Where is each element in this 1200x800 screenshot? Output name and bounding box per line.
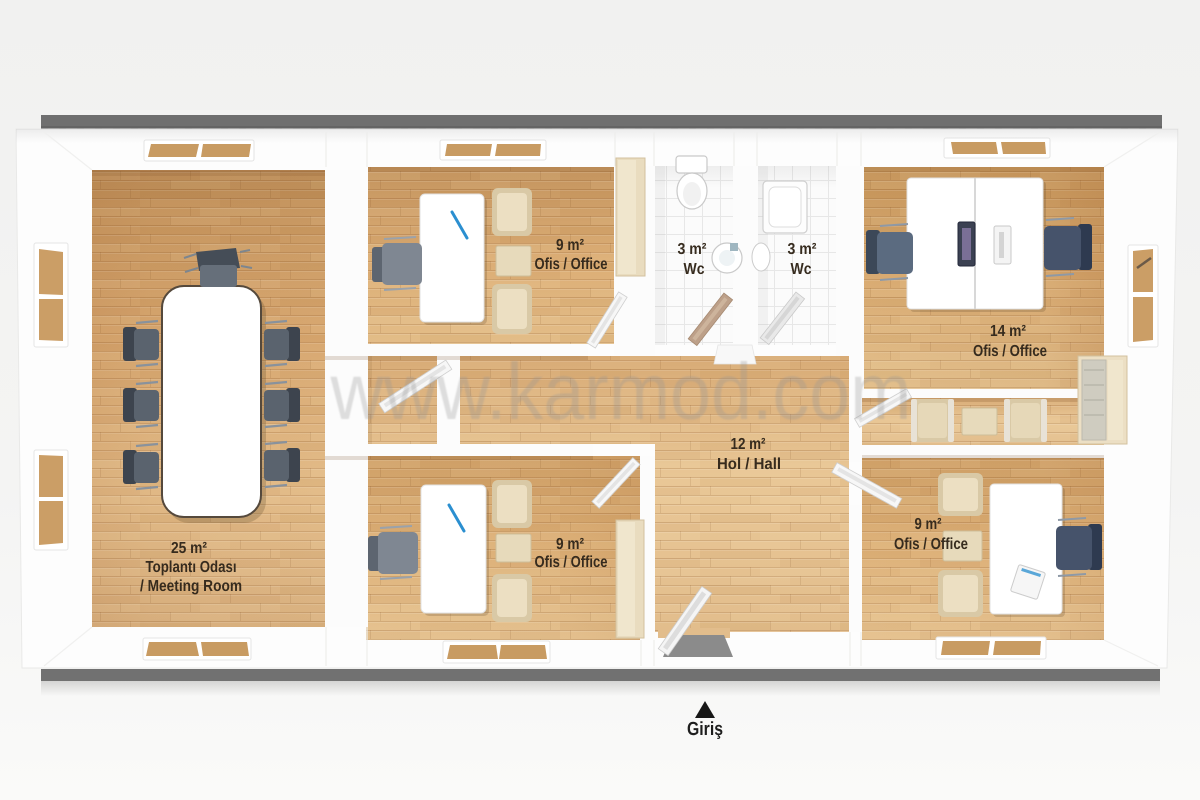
svg-text:Wc: Wc bbox=[791, 261, 812, 278]
svg-text:Giriş: Giriş bbox=[687, 719, 723, 740]
svg-text:3 m²: 3 m² bbox=[788, 241, 817, 258]
svg-text:14 m²: 14 m² bbox=[990, 323, 1026, 340]
svg-text:Hol / Hall: Hol / Hall bbox=[717, 456, 781, 473]
svg-text:3 m²: 3 m² bbox=[678, 241, 707, 258]
svg-text:Ofis / Office: Ofis / Office bbox=[894, 536, 968, 553]
svg-text:12 m²: 12 m² bbox=[731, 436, 766, 453]
svg-text:25 m²: 25 m² bbox=[171, 540, 207, 557]
svg-text:9 m²: 9 m² bbox=[915, 516, 942, 533]
svg-text:Ofis / Office: Ofis / Office bbox=[535, 256, 608, 273]
svg-text:Toplantı Odası: Toplantı Odası bbox=[146, 559, 237, 576]
svg-text:9 m²: 9 m² bbox=[556, 237, 584, 254]
svg-text:Ofis / Office: Ofis / Office bbox=[535, 554, 608, 571]
svg-text:Wc: Wc bbox=[684, 261, 705, 278]
svg-text:/ Meeting Room: / Meeting Room bbox=[140, 578, 242, 595]
svg-text:Ofis / Office: Ofis / Office bbox=[973, 343, 1047, 360]
svg-text:www.karmod.com: www.karmod.com bbox=[330, 347, 912, 436]
svg-text:9 m²: 9 m² bbox=[556, 536, 584, 553]
